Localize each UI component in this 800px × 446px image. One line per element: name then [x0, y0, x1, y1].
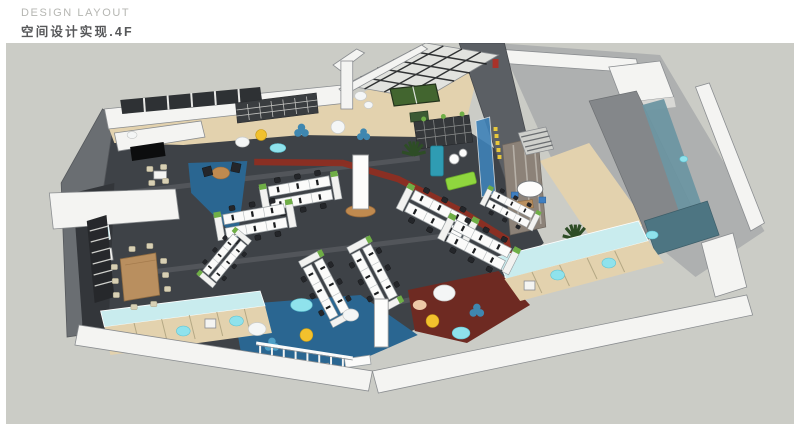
red-decor-shelf	[493, 59, 499, 68]
pouf-cyan	[291, 299, 313, 312]
booth-table-se	[524, 281, 535, 290]
pouf-yellow	[426, 315, 439, 328]
beanbag-cyan-se-2	[602, 258, 616, 268]
slide-page: DESIGN LAYOUT 空间设计实现.4F	[0, 0, 800, 446]
wall-pilaster	[341, 61, 353, 109]
pedestal-white	[374, 299, 388, 347]
pouf-white-3	[364, 102, 373, 109]
booth-table-sw	[205, 319, 216, 328]
pouf-white-nw	[127, 132, 137, 139]
lounge-chair-2	[231, 162, 242, 173]
coffee-table-2	[459, 149, 467, 157]
pantry-round-table	[517, 181, 543, 197]
beanbag-cyan-se-1	[551, 270, 565, 280]
beanbag-cyan-se-3	[646, 231, 658, 239]
ball-chair-white	[331, 121, 345, 134]
pouf-white-2	[355, 92, 367, 101]
page-title: 空间设计实现.4F	[21, 21, 134, 40]
sofa-teal	[431, 146, 444, 176]
slide-header: DESIGN LAYOUT 空间设计实现.4F	[21, 7, 134, 40]
floorplan-3d-render	[6, 43, 794, 424]
pantry-chair-blue-2	[539, 197, 546, 203]
beanbag-cyan-east-top	[680, 156, 688, 162]
structural-column	[353, 155, 369, 209]
pouf-white	[248, 323, 266, 336]
beanbag-cyan-sw-2	[176, 326, 190, 336]
pouf-peach	[413, 300, 427, 310]
pouf-cyan	[452, 327, 470, 339]
beanbag-cyan-sw-3	[230, 316, 244, 326]
pouf-yellow	[300, 329, 313, 342]
pouf-yellow-1	[256, 130, 267, 141]
table-cyan-round	[270, 144, 286, 153]
header-eyebrow: DESIGN LAYOUT	[21, 7, 134, 19]
pouf-white-1	[236, 137, 250, 147]
coffee-table-1	[449, 154, 459, 164]
pouf-white	[433, 285, 455, 301]
shelf-partition	[414, 112, 473, 150]
render-canvas	[6, 43, 794, 424]
wood-disc-rug	[212, 167, 230, 179]
pouf-white	[343, 309, 359, 321]
